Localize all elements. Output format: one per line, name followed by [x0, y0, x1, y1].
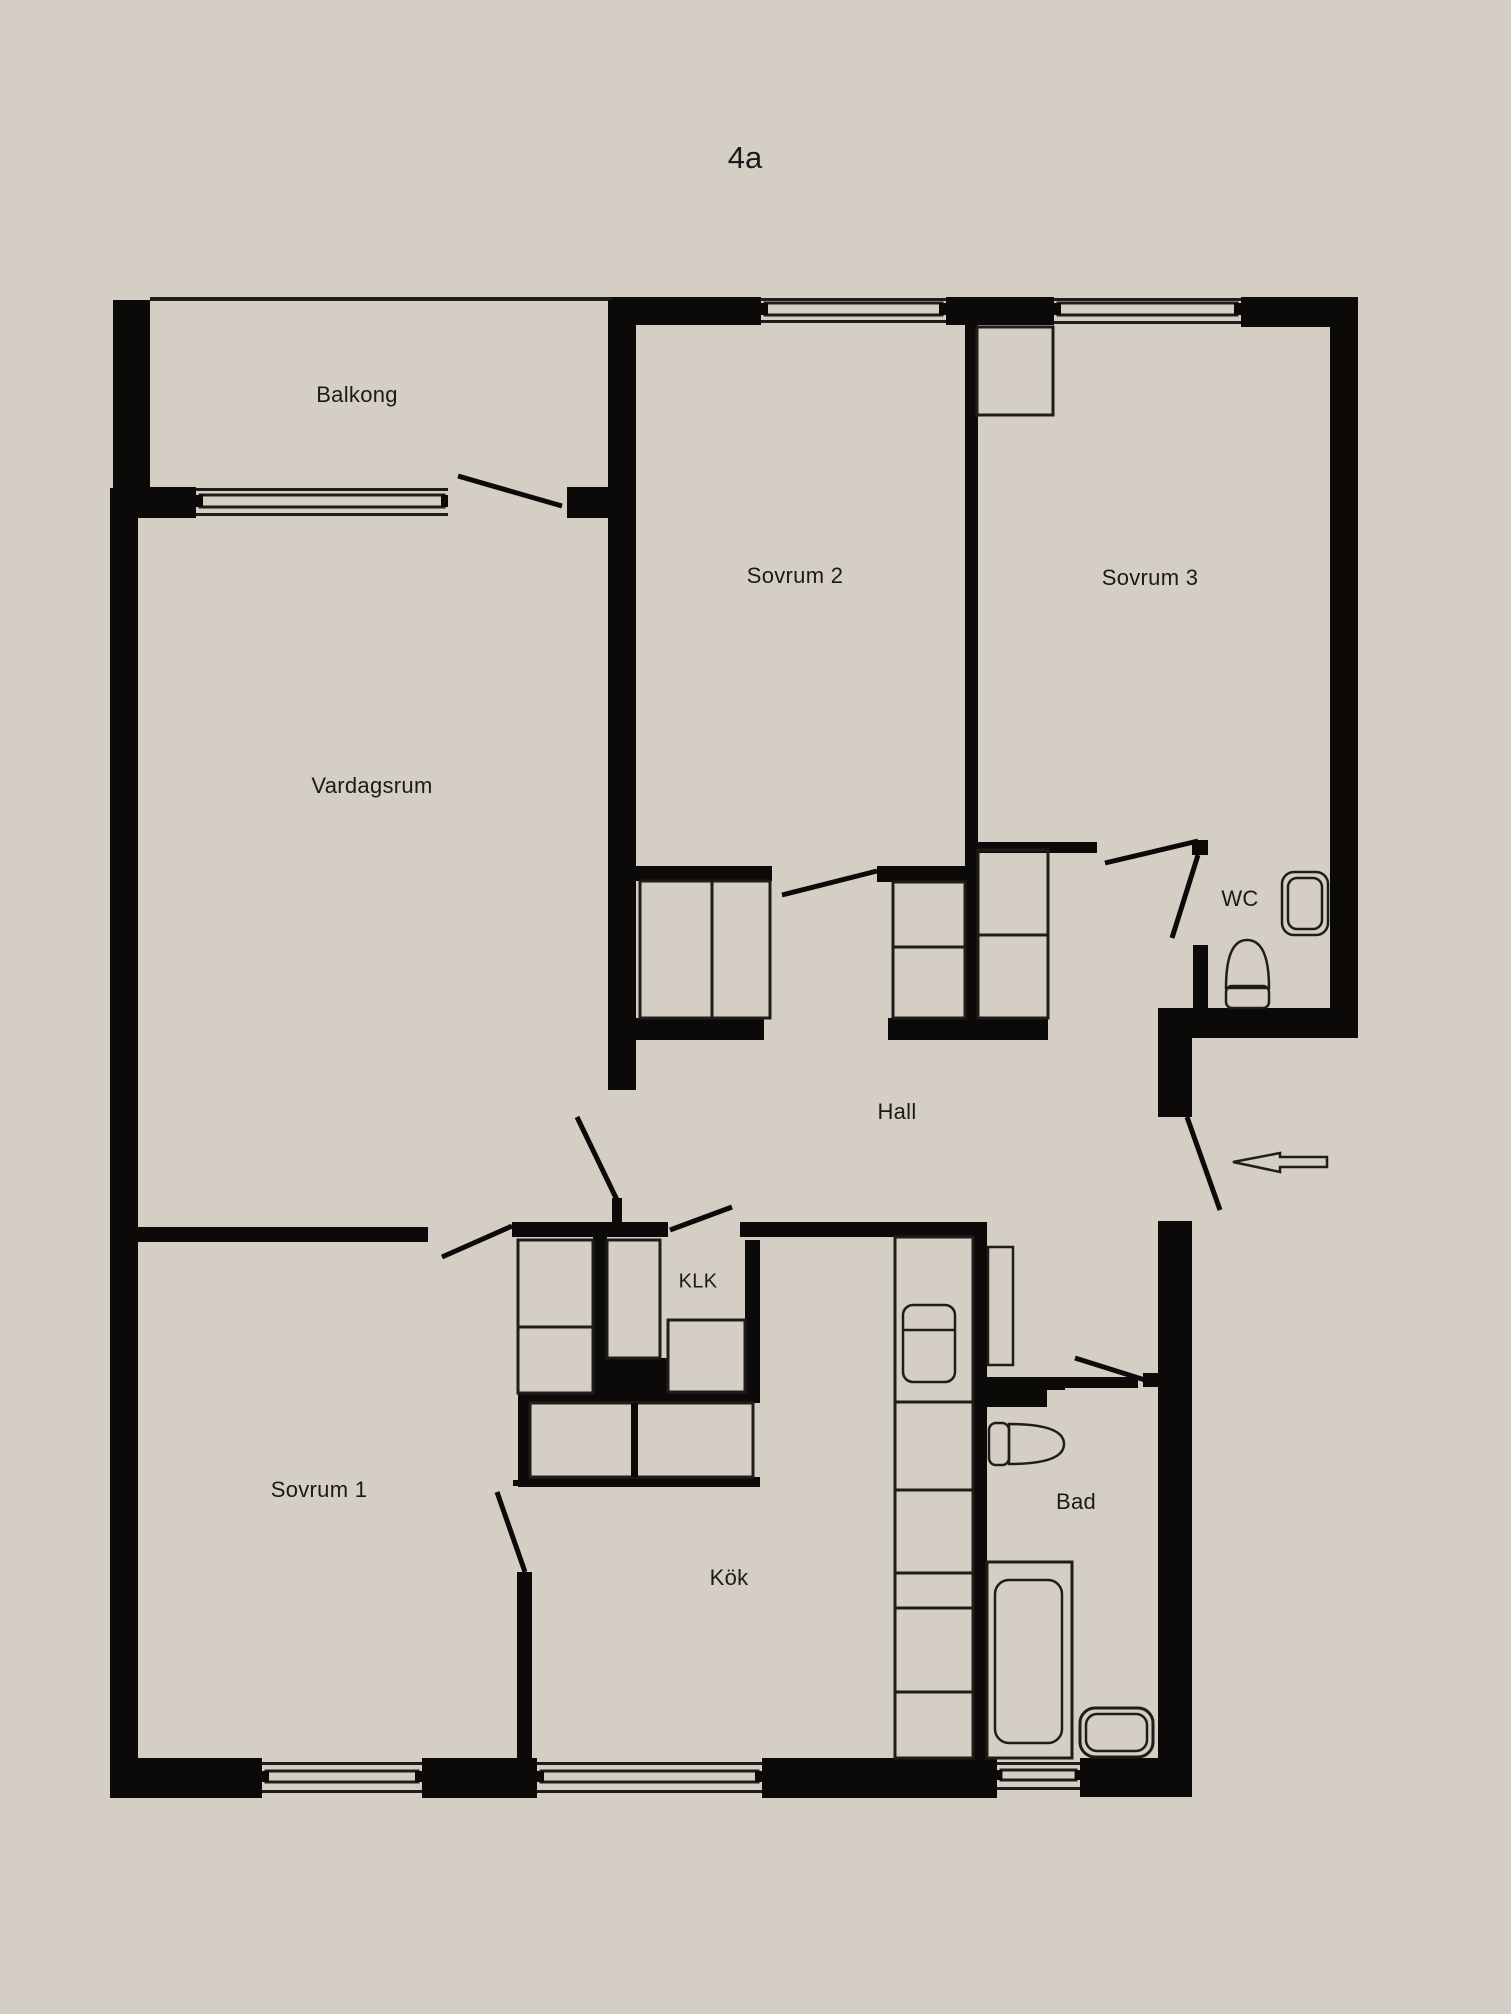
label-vardagsrum: Vardagsrum	[311, 773, 432, 799]
label-sovrum1: Sovrum 1	[271, 1477, 368, 1503]
label-kok: Kök	[710, 1565, 749, 1591]
label-wc: WC	[1221, 886, 1258, 912]
label-klk: KLK	[679, 1271, 718, 1294]
room-labels: 4a Balkong Sovrum 2 Sovrum 3 Vardagsrum …	[0, 0, 1511, 2014]
label-hall: Hall	[877, 1099, 916, 1125]
label-sovrum2: Sovrum 2	[747, 563, 844, 589]
page-title: 4a	[728, 140, 762, 176]
label-balkong: Balkong	[316, 382, 398, 408]
floorplan-page: 4a Balkong Sovrum 2 Sovrum 3 Vardagsrum …	[0, 0, 1511, 2014]
label-sovrum3: Sovrum 3	[1102, 565, 1199, 591]
label-bad: Bad	[1056, 1489, 1096, 1515]
